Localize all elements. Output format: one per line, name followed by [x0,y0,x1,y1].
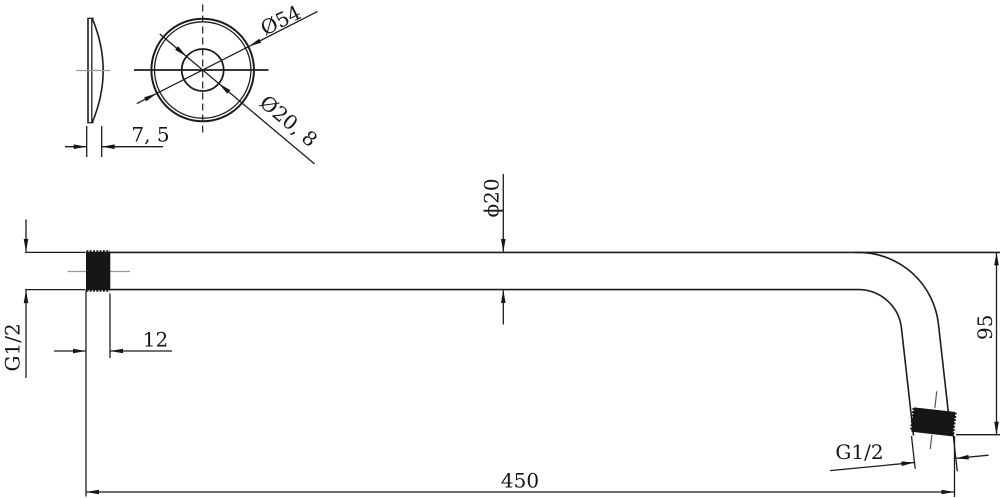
label-inlet-thread: G1/2 [1,323,25,371]
shower-arm-drawing: 7, 5 Ø54 Ø20, 8 G1/2 12 ϕ20 95 450 G1/2 [0,0,1000,498]
label-flange-outer-diameter: Ø54 [257,0,305,40]
dim-inlet-thread [25,220,86,379]
arm-tube [86,271,932,434]
label-drop-height: 95 [973,315,997,340]
label-tube-diameter: ϕ20 [480,178,504,217]
inlet-thread-block [86,252,110,290]
outlet-centerline [930,435,932,449]
label-inlet-thread-length: 12 [143,328,168,352]
outlet-thread-block [911,407,955,436]
label-arm-length: 450 [501,469,539,493]
drawing-lines [25,5,1000,498]
labels: 7, 5 Ø54 Ø20, 8 G1/2 12 ϕ20 95 450 G1/2 [1,0,998,492]
label-flange-thickness: 7, 5 [131,123,169,147]
dim-arm-length [86,290,955,497]
technical-drawing-canvas: 7, 5 Ø54 Ø20, 8 G1/2 12 ϕ20 95 450 G1/2 [0,0,1000,498]
label-outlet-thread: G1/2 [835,440,883,464]
flange-front-view [134,5,269,136]
